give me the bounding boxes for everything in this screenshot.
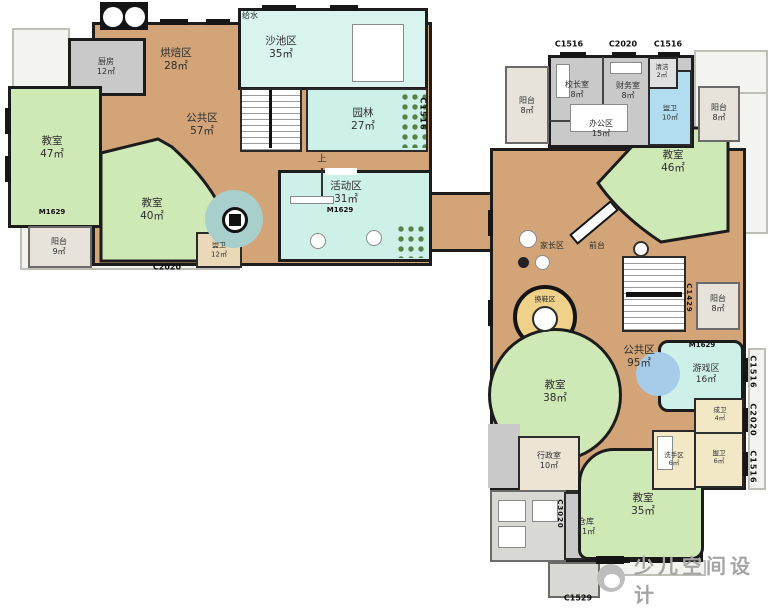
- room-garden-label: 园林 27㎡: [351, 107, 375, 133]
- window-segment: [560, 52, 586, 58]
- room-area: 15㎡: [592, 129, 610, 139]
- code-storage-window: C3020: [556, 499, 564, 529]
- room-area: 6㎡: [669, 459, 680, 467]
- room-classroom-40-label: 教室 40㎡: [140, 197, 164, 223]
- room-area: 8㎡: [520, 106, 533, 116]
- room-name: 行政室: [537, 451, 561, 461]
- room-classroom-35-label: 教室 35㎡: [631, 492, 655, 518]
- clock-icon: [633, 241, 649, 257]
- code-top-window-right: C1516: [654, 40, 682, 49]
- window-segment: [612, 52, 636, 58]
- stool-icon: [518, 257, 529, 268]
- room-area: 27㎡: [351, 120, 375, 133]
- room-area: 6㎡: [714, 457, 725, 465]
- room-area: 40㎡: [140, 210, 164, 223]
- room-name: 游戏区: [692, 364, 719, 375]
- code-text: C1516: [749, 450, 758, 483]
- watermark-text: 少儿空间设计: [634, 554, 754, 607]
- room-area: 8㎡: [712, 113, 725, 123]
- room-balcony-9-label: 阳台 9㎡: [51, 237, 67, 257]
- activity-door-gap: [325, 168, 357, 175]
- room-washroom-10-label: 盥卫 10㎡: [662, 104, 678, 122]
- room-sand-pool-label: 沙池区 35㎡: [265, 35, 297, 61]
- room-area: 8㎡: [621, 91, 634, 101]
- room-area: 95㎡: [627, 357, 651, 370]
- code-left-bottom-door: C2020: [153, 263, 181, 272]
- room-kitchen-label: 厨房 12㎡: [97, 57, 115, 77]
- room-game-zone-label: 游戏区 16㎡: [692, 364, 719, 387]
- water-supply-note: 给水: [242, 11, 258, 21]
- room-storage-label: 仓库 11㎡: [577, 517, 595, 537]
- code-text: M1629: [39, 208, 65, 216]
- sand-pool-equipment: [352, 24, 404, 82]
- code-right-window-2: C1516: [749, 450, 758, 483]
- note-text: 给水: [242, 11, 258, 21]
- code-text: M1629: [327, 206, 353, 214]
- code-text: C1516: [654, 40, 682, 49]
- room-area: 2㎡: [657, 71, 668, 79]
- code-right-window-1: C1516: [749, 355, 758, 388]
- front-desk-label: 前台: [589, 241, 605, 251]
- window-segment: [488, 300, 493, 326]
- code-activity-door: M1629: [327, 206, 353, 214]
- window-segment: [743, 408, 748, 432]
- cabinet-block: [488, 424, 520, 488]
- room-activity-label: 活动区 31㎡: [330, 180, 362, 206]
- room-area: 31㎡: [334, 193, 358, 206]
- furniture-icon: [498, 500, 526, 522]
- room-name: 教室: [663, 149, 684, 162]
- watermark-logo-face: [604, 574, 620, 588]
- round-table-icon: [366, 230, 382, 246]
- room-name: 活动区: [330, 180, 362, 193]
- window-segment: [5, 108, 11, 134]
- desk-icon: [610, 62, 642, 74]
- window-segment: [743, 452, 748, 476]
- round-table-icon: [519, 230, 537, 248]
- parents-zone-label: 家长区: [540, 241, 564, 251]
- code-game-door: M1629: [689, 341, 715, 349]
- room-name: 阳台: [711, 103, 727, 113]
- door-leaf-icon: [103, 7, 123, 27]
- room-baking-label: 烘焙区 28㎡: [160, 47, 192, 73]
- room-finance-label: 财务室 8㎡: [616, 81, 640, 101]
- plant-icon: [396, 224, 428, 258]
- room-area: 28㎡: [164, 60, 188, 73]
- room-name: 公共区: [186, 112, 218, 125]
- code-bottom-window: C1529: [564, 594, 592, 603]
- room-public-57-label: 公共区 57㎡: [186, 112, 218, 138]
- room-area: 11㎡: [577, 527, 595, 537]
- room-name: 家长区: [540, 241, 564, 251]
- service-block: [490, 490, 566, 562]
- window-segment: [262, 5, 296, 11]
- code-top-door: C2020: [609, 40, 637, 49]
- room-washroom-12-label: 盥卫 12㎡: [211, 241, 227, 259]
- room-area: 16㎡: [696, 375, 716, 386]
- code-text: C2020: [609, 40, 637, 49]
- room-area: 12㎡: [211, 250, 227, 259]
- room-name: 盥卫: [663, 104, 677, 113]
- window-segment: [330, 5, 358, 11]
- room-name: 园林: [353, 107, 374, 120]
- code-right-door: C2020: [749, 403, 758, 436]
- room-balcony-tr-label: 阳台 8㎡: [711, 103, 727, 123]
- floor-plan: 厨房 12㎡ 烘焙区 28㎡ 沙池区 35㎡ 给水 园林 27㎡ 公共区 57㎡…: [0, 0, 772, 609]
- room-name: 教室: [42, 135, 63, 148]
- room-area: 35㎡: [631, 505, 655, 518]
- round-table-icon: [535, 255, 550, 270]
- code-text: C2020: [153, 263, 181, 272]
- room-name: 洗手区: [664, 451, 684, 459]
- room-area: 57㎡: [190, 125, 214, 138]
- stair-direction: 上: [317, 154, 326, 165]
- stair-up-label: 上: [317, 154, 326, 165]
- room-balcony-tl-label: 阳台 8㎡: [519, 96, 535, 116]
- room-name: 阳台: [519, 96, 535, 106]
- room-name: 换鞋区: [535, 296, 556, 305]
- room-name: 公共区: [623, 344, 655, 357]
- room-name: 仓库: [578, 517, 594, 527]
- toilet-partition: [696, 432, 742, 434]
- room-washroom-6-label: 盥卫 6㎡: [713, 449, 726, 465]
- room-handwash-label: 洗手区 6㎡: [664, 451, 684, 467]
- room-area: 10㎡: [662, 113, 678, 122]
- room-area: 4㎡: [715, 414, 726, 422]
- room-classroom-46-label: 教室 46㎡: [661, 149, 685, 175]
- round-table-icon: [310, 233, 326, 249]
- window-segment: [206, 19, 230, 25]
- stair-rail: [626, 292, 682, 297]
- room-office-zone-label: 办公区 15㎡: [589, 119, 613, 139]
- room-area: 10㎡: [540, 461, 558, 471]
- code-top-window-left: C1516: [555, 40, 583, 49]
- column-core-icon: [229, 214, 241, 226]
- code-text: C3020: [556, 499, 564, 529]
- room-name: 办公区: [589, 119, 613, 129]
- code-classroom-door: M1629: [39, 208, 65, 216]
- room-area: 38㎡: [543, 392, 567, 405]
- room-area: 8㎡: [570, 90, 583, 100]
- room-name: 成卫: [714, 406, 727, 414]
- room-name: 厨房: [98, 57, 114, 67]
- room-area: 35㎡: [269, 48, 293, 61]
- window-segment: [488, 210, 493, 236]
- room-name: 沙池区: [265, 35, 297, 48]
- entry-door-icon: [100, 2, 148, 30]
- room-principal-label: 校长室 8㎡: [565, 80, 589, 100]
- shoe-change-label: 换鞋区: [535, 296, 556, 305]
- code-text: C1529: [564, 594, 592, 603]
- bottom-entry-door-icon: [596, 556, 624, 564]
- room-name: 教室: [633, 492, 654, 505]
- room-name: 阳台: [51, 237, 67, 247]
- code-text: C1429: [685, 283, 693, 313]
- room-name: 校长室: [565, 80, 589, 90]
- room-admin-label: 行政室 10㎡: [537, 451, 561, 471]
- window-segment: [5, 156, 11, 182]
- whiteboard-icon: [290, 196, 334, 204]
- room-name: 清洁: [656, 63, 669, 71]
- window-segment: [160, 19, 188, 25]
- room-area: 47㎡: [40, 148, 64, 161]
- code-text: C1516: [419, 97, 428, 130]
- watermark-logo-icon: [597, 564, 625, 592]
- room-name: 教室: [142, 197, 163, 210]
- furniture-icon: [532, 500, 558, 522]
- room-area: 12㎡: [97, 67, 115, 77]
- room-name: 阳台: [710, 294, 726, 304]
- room-name: 前台: [589, 241, 605, 251]
- window-segment: [743, 358, 748, 382]
- code-mid-balcony: C1429: [685, 283, 693, 313]
- shoe-change-center-icon: [532, 306, 558, 332]
- room-name: 烘焙区: [160, 47, 192, 60]
- room-name: 教室: [545, 379, 566, 392]
- room-area: 46㎡: [661, 162, 685, 175]
- room-name: 财务室: [616, 81, 640, 91]
- room-public-95-label: 公共区 95㎡: [623, 344, 655, 370]
- code-text: M1629: [689, 341, 715, 349]
- room-classroom-38-label: 教室 38㎡: [543, 379, 567, 405]
- code-left-right-window: C1516: [419, 97, 428, 130]
- room-name: 盥卫: [713, 449, 726, 457]
- code-text: C1516: [749, 355, 758, 388]
- stair-rail: [269, 90, 272, 148]
- room-balcony-mid-label: 阳台 8㎡: [710, 294, 726, 314]
- room-area: 8㎡: [711, 304, 724, 314]
- room-area: 9㎡: [52, 247, 65, 257]
- code-text: C2020: [749, 403, 758, 436]
- room-cleaning-label: 清洁 2㎡: [656, 63, 669, 79]
- room-adult-wc-label: 成卫 4㎡: [714, 406, 727, 422]
- furniture-icon: [498, 526, 526, 548]
- watermark-brand: 少儿空间设计: [634, 550, 772, 608]
- room-classroom-47-label: 教室 47㎡: [40, 135, 64, 161]
- room-name: 盥卫: [212, 241, 226, 250]
- door-leaf-icon: [125, 7, 145, 27]
- code-text: C1516: [555, 40, 583, 49]
